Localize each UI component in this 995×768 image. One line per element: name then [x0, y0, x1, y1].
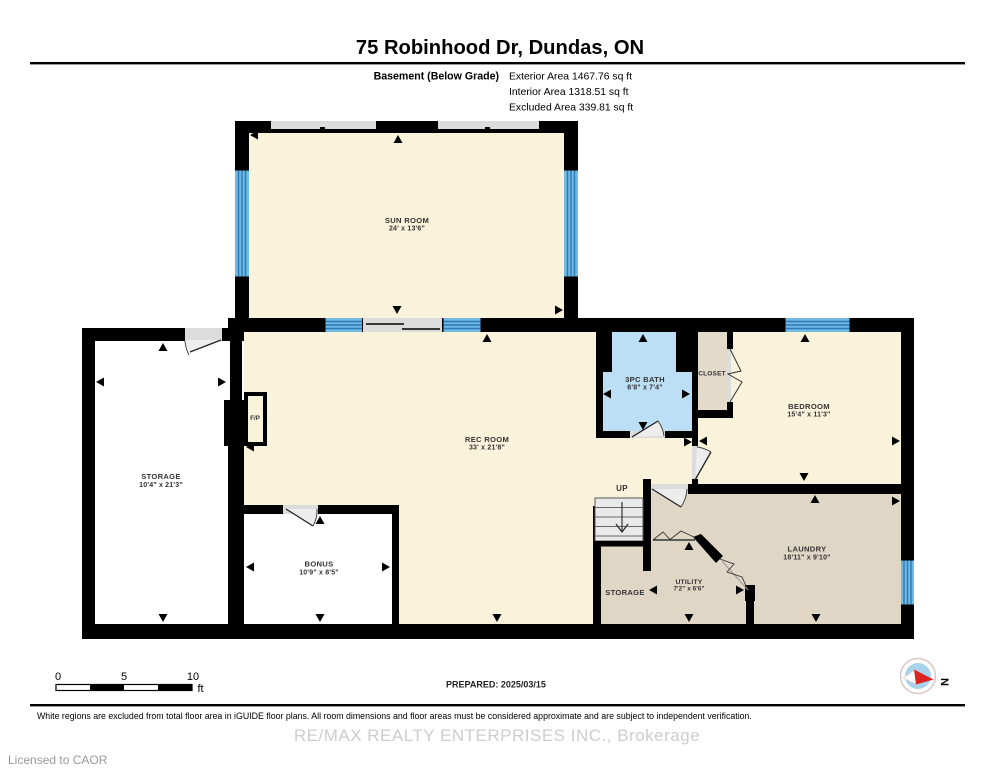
svg-text:ft: ft: [198, 683, 204, 695]
svg-text:BEDROOM: BEDROOM: [788, 402, 830, 411]
svg-text:3PC BATH: 3PC BATH: [625, 375, 665, 384]
svg-text:10: 10: [187, 671, 199, 683]
svg-text:15'4" x 11'3": 15'4" x 11'3": [787, 412, 830, 419]
svg-text:CLOSET: CLOSET: [698, 371, 726, 378]
svg-text:BONUS: BONUS: [305, 560, 334, 569]
svg-text:RE/MAX REALTY ENTERPRISES INC.: RE/MAX REALTY ENTERPRISES INC., Brokerag…: [294, 726, 700, 745]
svg-text:33' x 21'8": 33' x 21'8": [469, 445, 505, 452]
svg-text:PREPARED: 2025/03/15: PREPARED: 2025/03/15: [446, 680, 546, 690]
svg-text:White regions are excluded fro: White regions are excluded from total fl…: [37, 711, 752, 721]
svg-text:Interior Area 1318.51 sq ft: Interior Area 1318.51 sq ft: [509, 87, 629, 98]
svg-text:F/P: F/P: [250, 415, 260, 422]
svg-text:10'4" x 21'3": 10'4" x 21'3": [139, 482, 183, 489]
svg-text:24' x 13'6": 24' x 13'6": [389, 226, 425, 233]
svg-text:Basement (Below Grade): Basement (Below Grade): [374, 71, 499, 83]
svg-text:Licensed to CAOR: Licensed to CAOR: [8, 753, 108, 767]
svg-text:Exterior Area 1467.76 sq ft: Exterior Area 1467.76 sq ft: [509, 72, 632, 83]
svg-text:18'11" x 9'10": 18'11" x 9'10": [783, 555, 830, 562]
svg-text:REC ROOM: REC ROOM: [465, 435, 509, 444]
svg-text:0: 0: [55, 671, 61, 683]
svg-text:5: 5: [121, 671, 127, 683]
svg-text:6'8" x 7'4": 6'8" x 7'4": [627, 385, 663, 392]
svg-text:SUN ROOM: SUN ROOM: [385, 216, 429, 225]
svg-text:N: N: [938, 678, 950, 686]
svg-text:7'2" x 6'6": 7'2" x 6'6": [673, 586, 704, 593]
svg-text:STORAGE: STORAGE: [141, 472, 181, 481]
svg-text:UP: UP: [616, 484, 628, 493]
svg-text:75 Robinhood Dr, Dundas, ON: 75 Robinhood Dr, Dundas, ON: [356, 37, 644, 59]
svg-text:LAUNDRY: LAUNDRY: [788, 545, 827, 554]
svg-text:Excluded Area 339.81 sq ft: Excluded Area 339.81 sq ft: [509, 103, 633, 114]
svg-text:STORAGE: STORAGE: [605, 588, 645, 597]
svg-text:10'9" x 8'5": 10'9" x 8'5": [299, 570, 339, 577]
